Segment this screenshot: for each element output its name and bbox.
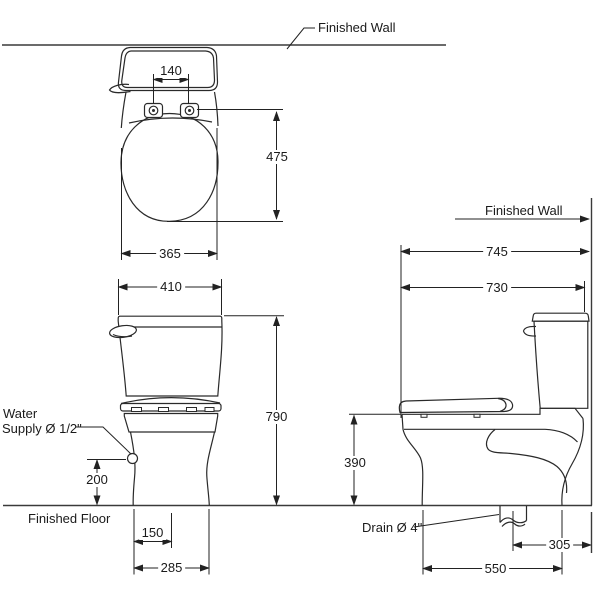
pedestal-right [207, 432, 215, 506]
seat-cover-arc [121, 398, 220, 404]
front-view-dimensions [87, 279, 284, 575]
technical-drawing-canvas: Finished Wall Finished Wall Finished Flo… [0, 0, 600, 600]
finished-wall-side-label: Finished Wall [485, 203, 563, 218]
dim-drain-offset: 305 [546, 538, 574, 552]
dim-overall-depth: 745 [483, 245, 511, 259]
seat-oval [121, 114, 218, 222]
bowl-front-side [402, 414, 423, 505]
water-supply-inlet [128, 454, 138, 464]
side-view-linework [399, 313, 589, 526]
trapway-contour [486, 430, 566, 494]
hinge-bolt-left-dot [152, 109, 155, 112]
dim-overall-height: 790 [263, 410, 291, 424]
seat-cover-side [399, 398, 512, 412]
dim-supply-height: 200 [83, 473, 111, 487]
deck-tick-1 [421, 414, 427, 417]
drain-label: Drain Ø 4" [362, 520, 422, 535]
plan-view-dimensions [122, 74, 284, 260]
front-view-linework [109, 316, 222, 505]
dim-seat-width: 365 [156, 247, 184, 261]
dim-tank-depth: 730 [483, 281, 511, 295]
dim-bowl-height: 390 [341, 456, 369, 470]
bowl-back-side [562, 419, 584, 506]
pedestal-left [131, 432, 136, 506]
bowl-rim-front [124, 414, 217, 433]
dim-supply-offset: 150 [139, 526, 167, 540]
hinge-bolt-right-dot [188, 109, 191, 112]
leader-lines [76, 28, 589, 527]
water-supply-label-line1: Water [3, 406, 37, 421]
dim-seat-length: 475 [263, 150, 291, 164]
drain-leader [414, 515, 499, 528]
tank-side [534, 321, 588, 408]
dim-tank-width: 410 [157, 280, 185, 294]
finished-floor-label: Finished Floor [28, 511, 110, 526]
dim-hinge-spacing: 140 [157, 64, 185, 78]
water-supply-label-line2: Supply Ø 1/2" [2, 421, 82, 436]
dim-base-depth: 550 [482, 562, 510, 576]
finished-wall-top-leader [287, 28, 315, 49]
dim-base-width: 285 [158, 561, 186, 575]
water-supply-leader [76, 427, 131, 454]
dim-140-extensions [154, 74, 189, 104]
finished-wall-top-label: Finished Wall [318, 20, 396, 35]
drawing-linework [0, 0, 600, 600]
dim-365-extensions [122, 128, 218, 260]
bowl-deck-side [402, 408, 583, 418]
deck-tick-2 [474, 414, 480, 417]
bowl-side-left [121, 92, 126, 128]
dim-475-extensions [167, 110, 283, 222]
tank-lid-side [532, 313, 589, 321]
seat-cover-cap [498, 399, 506, 412]
rim-bottom-side [404, 429, 578, 442]
